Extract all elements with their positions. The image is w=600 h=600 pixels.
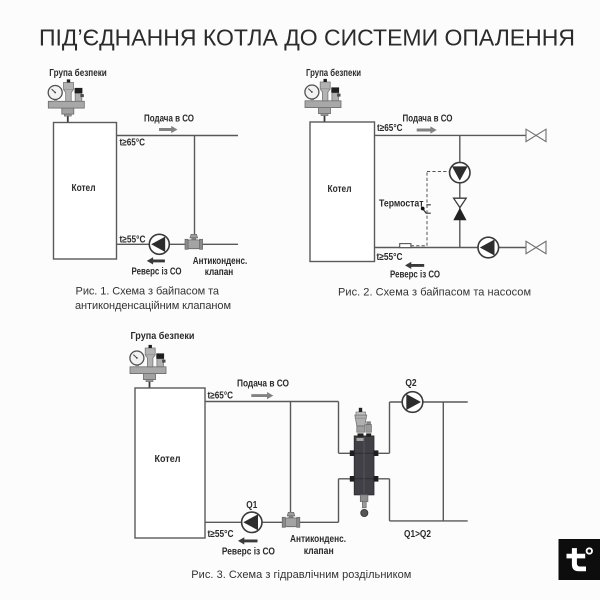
svg-text:t≥65°C: t≥65°C	[120, 138, 146, 149]
svg-text:клапан: клапан	[304, 546, 334, 557]
svg-text:t≥55°C: t≥55°C	[208, 529, 234, 540]
svg-text:Подача в СО: Подача в СО	[144, 114, 194, 125]
svg-text:t≥55°C: t≥55°C	[377, 252, 403, 263]
svg-text:антиконденсаційним клапаном: антиконденсаційним клапаном	[75, 300, 231, 312]
svg-text:t≥55°C: t≥55°C	[120, 234, 146, 245]
svg-text:Антиконденс.: Антиконденс.	[193, 256, 248, 267]
svg-text:клапан: клапан	[205, 267, 234, 278]
svg-text:Група безпеки: Група безпеки	[306, 67, 361, 79]
svg-text:Група безпеки: Група безпеки	[49, 67, 107, 79]
svg-text:Термостат: Термостат	[379, 198, 424, 209]
svg-text:Подача в СО: Подача в СО	[237, 379, 289, 390]
svg-text:ПІД’ЄДНАННЯ КОТЛА ДО СИСТЕМИ О: ПІД’ЄДНАННЯ КОТЛА ДО СИСТЕМИ ОПАЛЕННЯ	[39, 25, 575, 51]
svg-text:Подача в СО: Подача в СО	[403, 114, 453, 125]
svg-text:Антиконденс.: Антиконденс.	[290, 534, 346, 545]
svg-text:Котел: Котел	[328, 184, 352, 195]
svg-text:Q1>Q2: Q1>Q2	[404, 529, 431, 540]
svg-text:Q2: Q2	[405, 378, 417, 389]
svg-text:Реверс із СО: Реверс із СО	[222, 547, 275, 558]
svg-text:Котел: Котел	[72, 183, 96, 194]
svg-text:Q1: Q1	[246, 500, 257, 511]
svg-text:Рис. 1. Схема з байпасом та: Рис. 1. Схема з байпасом та	[76, 286, 220, 298]
svg-text:t≥65°C: t≥65°C	[377, 123, 403, 134]
svg-text:Група безпеки: Група безпеки	[131, 330, 195, 342]
svg-text:Рис. 2. Схема з байпасом та на: Рис. 2. Схема з байпасом та насосом	[338, 287, 531, 299]
svg-text:Реверс із СО: Реверс із СО	[390, 269, 440, 280]
svg-text:t≥65°C: t≥65°C	[208, 390, 234, 401]
svg-text:Реверс із СО: Реверс із СО	[132, 266, 182, 277]
svg-text:Рис. 3. Схема з гідравлічним р: Рис. 3. Схема з гідравлічним роздільнико…	[191, 569, 411, 581]
svg-text:Котел: Котел	[155, 454, 181, 465]
